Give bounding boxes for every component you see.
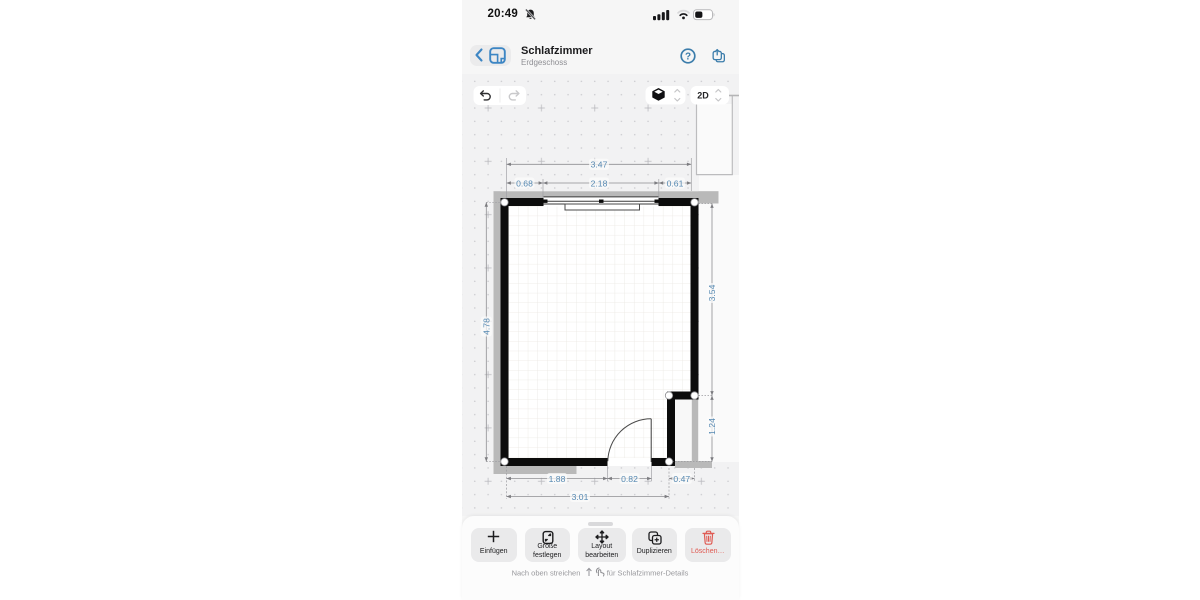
- svg-text:3.47: 3.47: [590, 160, 607, 170]
- svg-text:0.47: 0.47: [673, 474, 690, 484]
- svg-text:3.01: 3.01: [571, 492, 588, 502]
- svg-text:2D: 2D: [697, 91, 709, 101]
- svg-text:1.24: 1.24: [707, 418, 717, 435]
- svg-text:?: ?: [684, 51, 690, 62]
- svg-text:4.78: 4.78: [481, 318, 491, 335]
- svg-text:0.68: 0.68: [516, 178, 533, 188]
- svg-text:0.82: 0.82: [621, 474, 638, 484]
- svg-text:3.54: 3.54: [707, 284, 717, 301]
- svg-text:0.61: 0.61: [666, 178, 683, 188]
- svg-text:2.18: 2.18: [590, 178, 607, 188]
- svg-text:1.88: 1.88: [548, 474, 565, 484]
